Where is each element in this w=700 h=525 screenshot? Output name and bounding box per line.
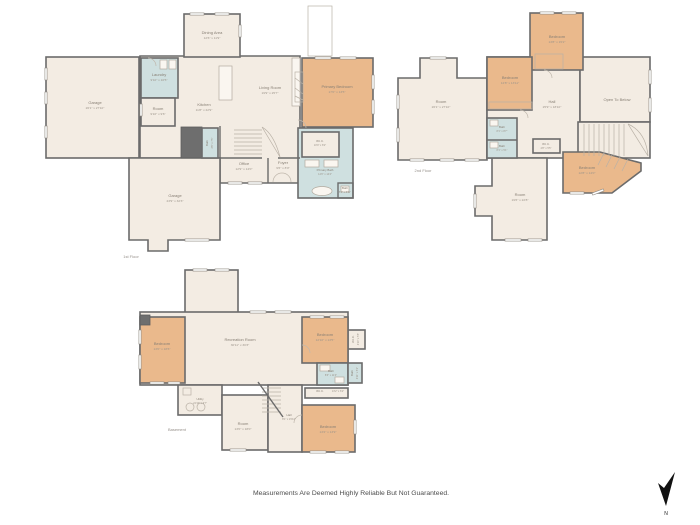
room-dims: 23'9" x 32'3"	[167, 199, 184, 203]
room-label: W.I.C.	[316, 139, 324, 143]
second-floor-label: 2nd Floor	[415, 168, 433, 173]
room-label: Kitchen	[197, 102, 210, 107]
room-dims: 9'6" x 8'0"	[276, 166, 290, 170]
room-dims: 26'1" x 27'10"	[86, 106, 105, 110]
floorplan-svg: Dining Area 12'6" x 11'9" Garage 26'1" x…	[0, 0, 700, 525]
north-label: N	[664, 511, 668, 517]
room-label: Bedroom	[549, 34, 566, 39]
room-dims: 4'10" x 5'5"	[357, 333, 360, 345]
room-label: Office	[239, 161, 250, 166]
room-label: Bedroom	[154, 341, 171, 346]
second-big-room	[398, 58, 487, 160]
room-label: Utility	[196, 397, 204, 401]
floorplan-sheet: Dining Area 12'6" x 11'9" Garage 26'1" x…	[0, 0, 700, 525]
room-dims: 12'9" x 14'0"	[236, 167, 253, 171]
room-label: Foyer	[278, 160, 289, 165]
room-dims: 5'6" x 3'11"	[339, 191, 351, 194]
room-label: Room	[238, 421, 249, 426]
room-label: Open To Below	[603, 97, 630, 102]
compass: N	[658, 472, 675, 517]
room-dims: 13'8" x 15'2"	[549, 40, 566, 44]
disclaimer-text: Measurements Are Deemed Highly Reliable …	[253, 490, 449, 497]
room-dims: 12'6" x 11'9"	[204, 36, 221, 40]
room-label: Room	[153, 106, 164, 111]
room-label: Garage	[88, 100, 102, 105]
room-dims: 8'1" x 5'1"	[497, 149, 508, 152]
room-dims: 4'8" x 5'5"	[541, 147, 552, 150]
first-floor-plan: Dining Area 12'6" x 11'9" Garage 26'1" x…	[45, 6, 374, 259]
room-dims: 12'8" x 14'0"	[579, 171, 596, 175]
room-label: Room	[515, 192, 526, 197]
room-dims: 26'1" x 27'10"	[432, 105, 451, 109]
basement-dark-block	[140, 315, 150, 325]
room-label: Room	[436, 99, 447, 104]
room-label: Primary Bath	[317, 168, 334, 172]
room-label: Garage	[168, 193, 182, 198]
room-dims: 12'8" x 13'11"	[501, 81, 519, 85]
second-open-below-area	[580, 57, 650, 122]
room-dims: 30'11" x 30'3"	[231, 343, 249, 347]
room-dims: 13'2" x 13'9"	[320, 430, 337, 434]
porch-outline	[308, 6, 332, 56]
room-dims: 8'1" x 8'7"	[497, 130, 508, 133]
room-dims: 12'10" x 13'5"	[316, 338, 335, 342]
room-dims: 3'6" x 7'5"	[211, 137, 214, 148]
room-label: Bedroom	[579, 165, 596, 170]
first-garage-lower-room	[129, 158, 220, 251]
room-dims: 9'10" x 10'5"	[151, 78, 168, 82]
basement-rec-bump	[185, 270, 238, 313]
room-label: Dining Area	[202, 30, 223, 35]
room-dims: 11'8" x 22'9"	[196, 108, 213, 112]
room-label: Laundry	[152, 72, 166, 77]
room-label: Primary Bedroom	[321, 84, 353, 89]
second-floor-plan: Bedroom 13'8" x 15'2" Bedroom 12'8" x 13…	[397, 12, 651, 241]
room-label: Bedroom	[320, 424, 337, 429]
room-dims: 25'9" x 18'10"	[543, 105, 562, 109]
room-dims: 19'6" x 22'8"	[512, 198, 529, 202]
first-dark-block	[181, 127, 202, 158]
room-dims: 8'1" x 15'10"	[282, 418, 296, 421]
room-label: Hall	[549, 99, 556, 104]
room-label: Bedroom	[502, 75, 519, 80]
room-label: Hall	[287, 413, 292, 417]
room-label: Bath	[499, 125, 505, 129]
room-label: W.I.C.	[542, 142, 550, 146]
room-label: Bedroom	[317, 332, 334, 337]
room-dims: 13'2" x 6'2"	[332, 390, 344, 393]
room-label: Bath	[328, 369, 334, 373]
room-dims: 13'0" x 18'0"	[235, 427, 252, 431]
room-label: W.I.C.	[316, 389, 324, 393]
basement-plan: Bedroom 13'0" x 18'6" Recreation Room 30…	[139, 269, 365, 453]
room-dims: 8'6" x 11'4"	[325, 374, 337, 377]
room-dims: 9'10" x 9'6"	[150, 112, 165, 116]
room-dims: 10'9" x 8'2"	[314, 144, 326, 147]
room-label: Bath	[499, 144, 505, 148]
room-label: Bath	[205, 140, 209, 146]
room-dims: 19'9" x 25'7"	[262, 91, 279, 95]
room-label: Living Room	[259, 85, 282, 90]
room-label: Bath	[342, 186, 348, 190]
room-dims: 13'0" x 18'6"	[154, 347, 171, 351]
room-dims: 24'10" x 9'7"	[193, 402, 207, 405]
room-dims: 4'11" x 5'1"	[356, 367, 359, 379]
north-arrow-icon	[658, 472, 675, 506]
basement-floor-label: Basement	[168, 427, 187, 432]
room-label: Recreation Room	[224, 337, 256, 342]
room-dims: 14'0" x 14'4"	[318, 173, 332, 176]
room-label: Bath	[350, 370, 354, 376]
room-label: W.I.C.	[351, 335, 355, 343]
room-dims: 17'0" x 13'5"	[329, 90, 346, 94]
first-floor-label: 1st Floor	[123, 254, 139, 259]
